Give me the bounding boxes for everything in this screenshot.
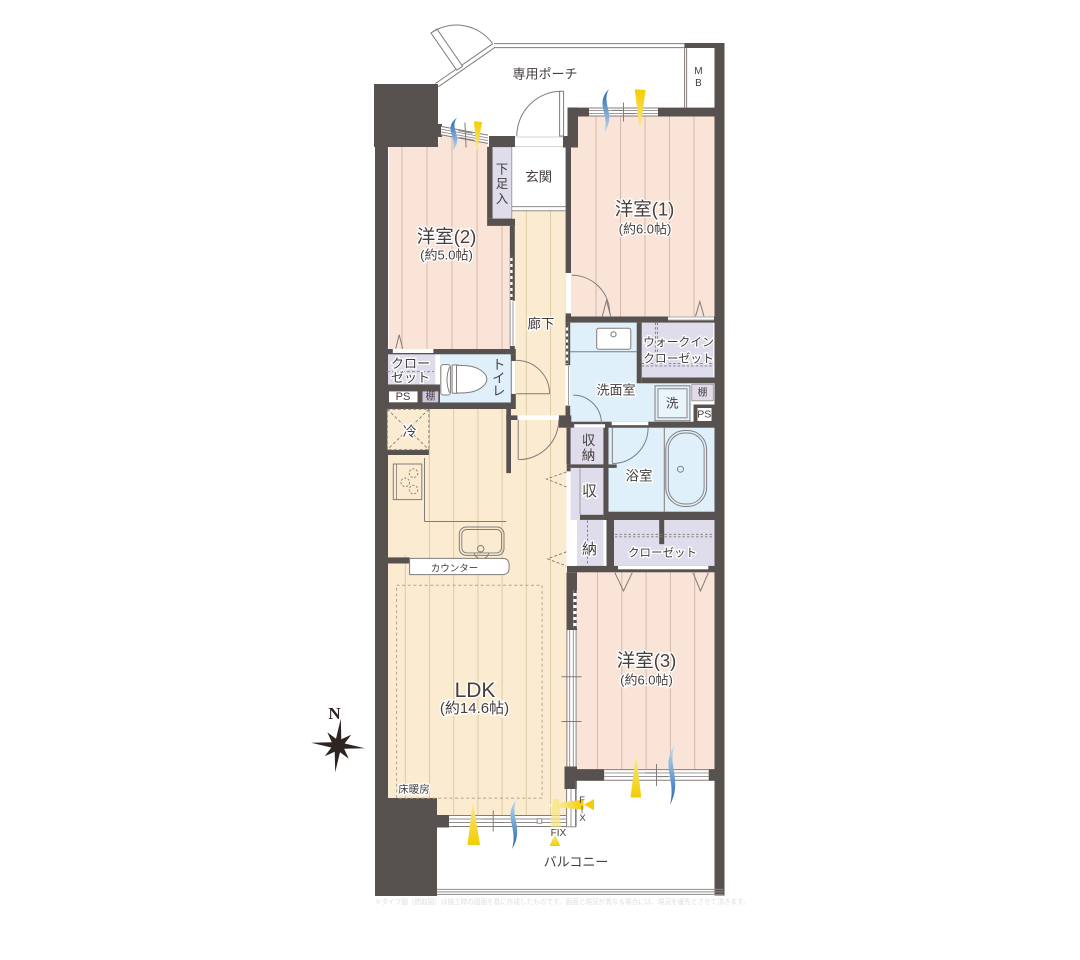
svg-text:(約5.0帖): (約5.0帖) bbox=[420, 248, 473, 263]
svg-text:PS: PS bbox=[697, 409, 711, 421]
svg-text:バルコニー: バルコニー bbox=[544, 855, 609, 870]
svg-text:足: 足 bbox=[496, 177, 509, 191]
svg-text:納: 納 bbox=[582, 448, 596, 463]
svg-text:浴室: 浴室 bbox=[626, 468, 653, 484]
svg-text:収: 収 bbox=[582, 483, 597, 500]
svg-text:クローゼット: クローゼット bbox=[643, 352, 714, 366]
svg-text:棚: 棚 bbox=[426, 391, 436, 403]
svg-text:収: 収 bbox=[582, 433, 596, 448]
svg-text:冷: 冷 bbox=[403, 424, 417, 440]
svg-text:N: N bbox=[328, 704, 341, 723]
svg-text:FIX: FIX bbox=[551, 828, 567, 839]
svg-text:(約14.6帖): (約14.6帖) bbox=[440, 700, 509, 717]
svg-text:カウンター: カウンター bbox=[431, 563, 479, 574]
svg-text:M: M bbox=[694, 66, 702, 77]
svg-text:ゼット: ゼット bbox=[391, 370, 430, 385]
svg-text:(約6.0帖): (約6.0帖) bbox=[619, 222, 672, 237]
svg-text:洋室(1): 洋室(1) bbox=[615, 199, 675, 220]
svg-text:LDK: LDK bbox=[455, 679, 496, 702]
svg-text:廊下: 廊下 bbox=[528, 316, 555, 332]
svg-text:レ: レ bbox=[492, 384, 505, 399]
svg-text:※タイプ図（間取図）は施工時の図面を基に作成したものです。図: ※タイプ図（間取図）は施工時の図面を基に作成したものです。図面と現況が異なる場合… bbox=[375, 897, 750, 906]
svg-text:床暖房: 床暖房 bbox=[398, 783, 430, 796]
svg-text:B: B bbox=[695, 78, 702, 89]
svg-text:X: X bbox=[579, 813, 586, 824]
svg-text:(約6.0帖): (約6.0帖) bbox=[620, 673, 673, 688]
svg-text:洋室(2): 洋室(2) bbox=[417, 226, 477, 247]
svg-text:玄関: 玄関 bbox=[525, 169, 552, 185]
svg-text:洗面室: 洗面室 bbox=[596, 383, 635, 398]
svg-text:入: 入 bbox=[496, 192, 509, 206]
svg-text:専用ポーチ: 専用ポーチ bbox=[512, 67, 577, 82]
svg-text:洗: 洗 bbox=[666, 397, 679, 411]
svg-text:棚: 棚 bbox=[698, 386, 708, 398]
svg-text:洋室(3): 洋室(3) bbox=[617, 650, 677, 671]
svg-text:クローゼット: クローゼット bbox=[628, 547, 697, 560]
svg-text:クロー: クロー bbox=[391, 356, 430, 371]
svg-text:ウォークイン: ウォークイン bbox=[643, 335, 714, 349]
svg-text:下: 下 bbox=[496, 163, 509, 177]
svg-text:PS: PS bbox=[396, 391, 411, 403]
svg-text:納: 納 bbox=[582, 541, 597, 558]
